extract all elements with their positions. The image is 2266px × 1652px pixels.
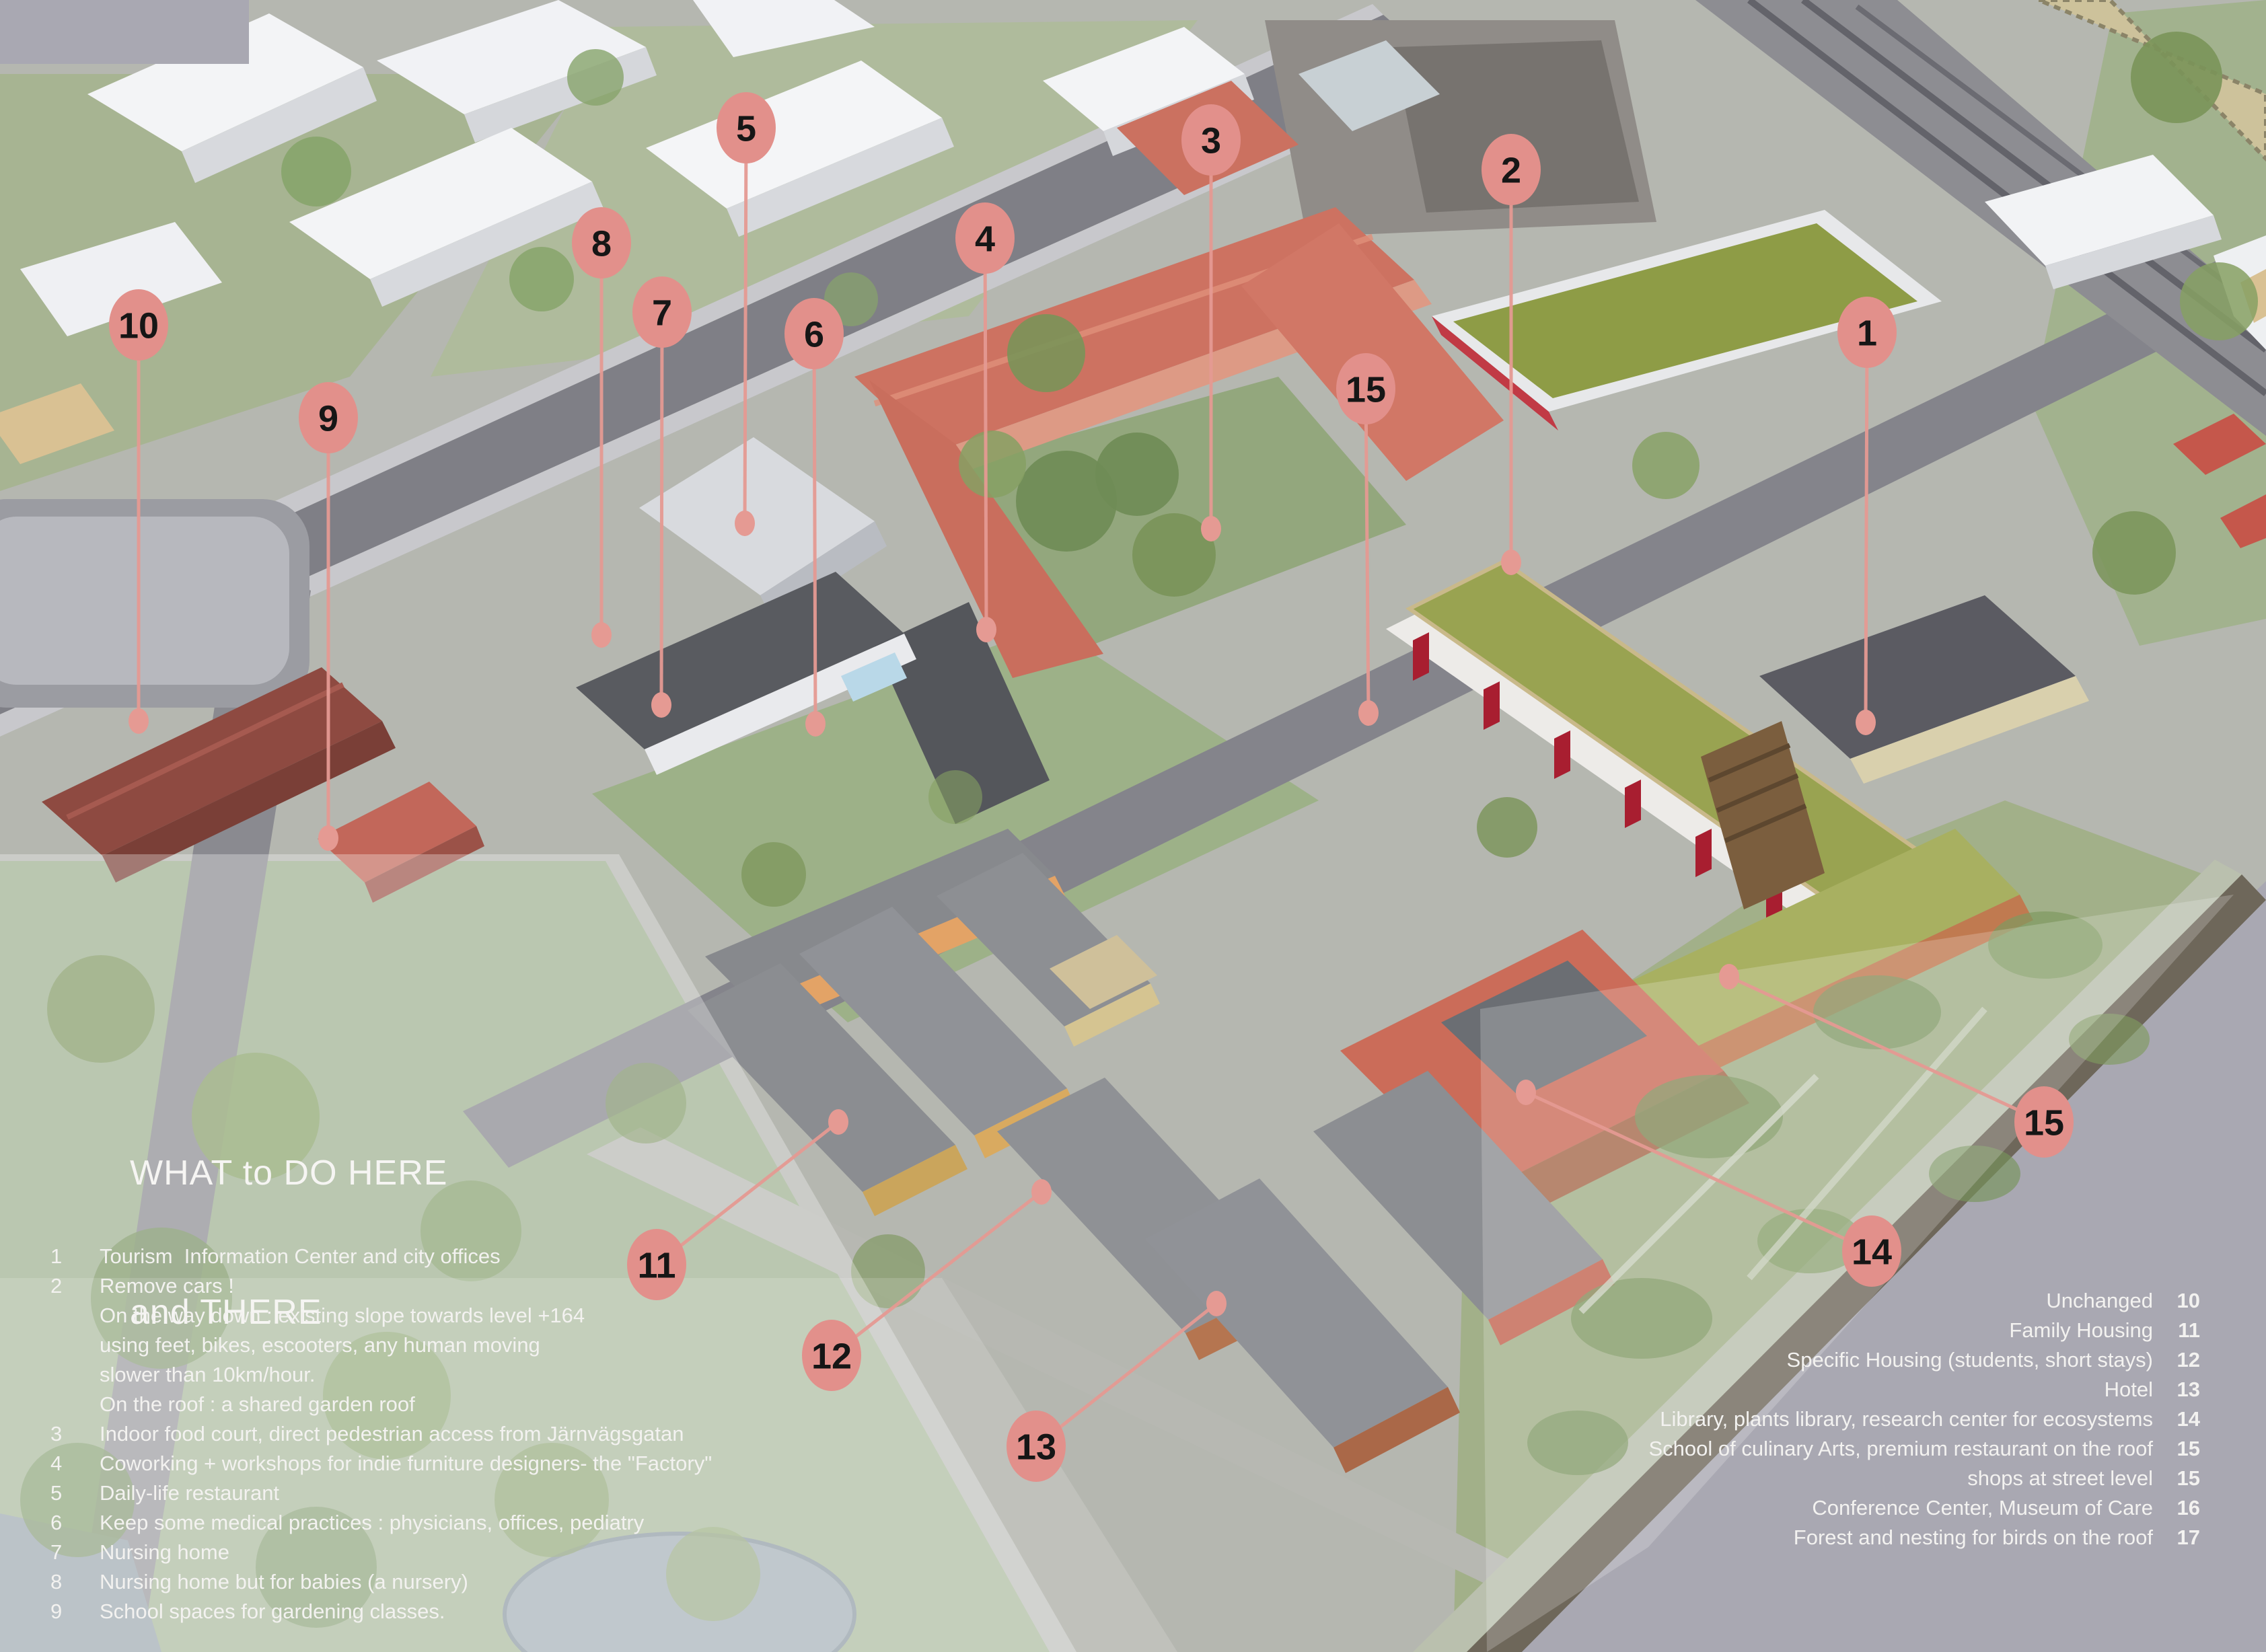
legend-right-row: Library, plants library, research center… — [1648, 1404, 2200, 1434]
legend-item-text: Forest and nesting for birds on the roof — [1794, 1523, 2153, 1552]
marker-number: 10 — [118, 305, 159, 346]
legend-item-number — [50, 1390, 100, 1419]
legend-item-text: Tourism Information Center and city offi… — [100, 1242, 501, 1271]
legend-item-number: 2 — [50, 1271, 100, 1301]
map-marker-15: 15 — [2014, 1086, 2074, 1158]
legend-left-row: 8Nursing home but for babies (a nursery) — [50, 1567, 712, 1597]
legend-item-number — [50, 1301, 100, 1330]
leader-line-14 — [1526, 1092, 1872, 1251]
leader-endpoint-dot — [318, 825, 338, 851]
legend-right-list: Unchanged10Family Housing11Specific Hous… — [1648, 1286, 2200, 1552]
legend-item-number: 15 — [2153, 1464, 2200, 1493]
map-marker-10: 10 — [109, 289, 168, 361]
map-marker-14: 14 — [1842, 1215, 1901, 1287]
legend-item-text: Conference Center, Museum of Care — [1812, 1493, 2153, 1523]
legend-item-number: 16 — [2153, 1493, 2200, 1523]
legend-left-row: 4Coworking + workshops for indie furnitu… — [50, 1449, 712, 1478]
map-marker-2: 2 — [1482, 134, 1541, 205]
marker-number: 5 — [736, 108, 756, 149]
legend-item-text: Library, plants library, research center… — [1660, 1404, 2153, 1434]
legend-item-text: On the roof : a shared garden roof — [100, 1390, 415, 1419]
legend-item-number: 13 — [2153, 1375, 2200, 1404]
map-marker-12: 12 — [802, 1320, 861, 1391]
leader-line-12 — [832, 1192, 1041, 1355]
map-marker-8: 8 — [572, 207, 631, 278]
legend-left-row: 7Nursing home — [50, 1538, 712, 1567]
legend-item-text: Indoor food court, direct pedestrian acc… — [100, 1419, 684, 1449]
leader-line-4 — [985, 238, 986, 630]
legend-item-text: On the way down : existing slope towards… — [100, 1301, 585, 1330]
legend-left-row: On the way down : existing slope towards… — [50, 1301, 712, 1330]
marker-number: 12 — [811, 1336, 852, 1376]
marker-number: 9 — [318, 398, 338, 439]
legend-right-row: shops at street level15 — [1648, 1464, 2200, 1493]
map-marker-6: 6 — [784, 298, 844, 369]
marker-number: 13 — [1016, 1427, 1056, 1467]
legend-item-number — [50, 1360, 100, 1390]
leader-endpoint-dot — [591, 622, 612, 648]
marker-number: 14 — [1852, 1232, 1892, 1272]
map-marker-4: 4 — [955, 202, 1015, 274]
legend-item-number: 17 — [2153, 1523, 2200, 1552]
map-marker-3: 3 — [1181, 104, 1241, 176]
leader-line-1 — [1866, 332, 1867, 722]
leader-endpoint-dot — [1206, 1291, 1227, 1316]
leader-endpoint-dot — [1358, 700, 1379, 726]
legend-item-text: Unchanged — [2046, 1286, 2153, 1316]
leader-line-13 — [1036, 1304, 1216, 1446]
legend-item-number: 9 — [50, 1597, 100, 1626]
legend-item-number: 5 — [50, 1478, 100, 1508]
marker-number: 15 — [1346, 369, 1386, 410]
marker-number: 15 — [2024, 1102, 2064, 1143]
legend-left-row: 6Keep some medical practices : physician… — [50, 1508, 712, 1538]
leader-line-7 — [661, 312, 662, 705]
title-line-1: WHAT to DO HERE — [130, 1150, 447, 1197]
map-marker-7: 7 — [632, 276, 692, 348]
legend-item-number: 3 — [50, 1419, 100, 1449]
legend-left-row: using feet, bikes, escooters, any human … — [50, 1330, 712, 1360]
legend-item-number: 14 — [2153, 1404, 2200, 1434]
legend-item-number: 1 — [50, 1242, 100, 1271]
legend-item-number: 11 — [2153, 1316, 2200, 1345]
legend-item-text: Nursing home — [100, 1538, 229, 1567]
map-marker-1: 1 — [1837, 297, 1897, 368]
masterplan-slide: 10987564315211112131415 WHAT to DO HERE … — [0, 0, 2266, 1652]
legend-right-row: Forest and nesting for birds on the roof… — [1648, 1523, 2200, 1552]
map-marker-13: 13 — [1007, 1411, 1066, 1482]
leader-endpoint-dot — [805, 711, 826, 737]
legend-left-list: 1Tourism Information Center and city off… — [50, 1242, 712, 1626]
marker-number: 6 — [804, 314, 824, 354]
legend-right-row: Specific Housing (students, short stays)… — [1648, 1345, 2200, 1375]
legend-item-text: School of culinary Arts, premium restaur… — [1648, 1434, 2153, 1464]
legend-item-text: Coworking + workshops for indie furnitur… — [100, 1449, 712, 1478]
legend-left-row: 9School spaces for gardening classes. — [50, 1597, 712, 1626]
legend-item-number — [50, 1330, 100, 1360]
leader-endpoint-dot — [651, 692, 671, 718]
legend-item-number: 15 — [2153, 1434, 2200, 1464]
leader-line-5 — [745, 128, 746, 523]
marker-number: 2 — [1501, 150, 1521, 190]
leader-endpoint-dot — [1516, 1080, 1536, 1105]
legend-right-row: School of culinary Arts, premium restaur… — [1648, 1434, 2200, 1464]
leader-endpoint-dot — [976, 617, 996, 642]
legend-item-text: slower than 10km/hour. — [100, 1360, 316, 1390]
legend-item-number: 6 — [50, 1508, 100, 1538]
legend-right-row: Conference Center, Museum of Care16 — [1648, 1493, 2200, 1523]
legend-item-text: Family Housing — [2009, 1316, 2153, 1345]
leader-endpoint-dot — [1856, 710, 1876, 735]
map-marker-15: 15 — [1336, 353, 1395, 424]
legend-left-row: 5Daily-life restaurant — [50, 1478, 712, 1508]
legend-item-number: 8 — [50, 1567, 100, 1597]
legend-item-number: 7 — [50, 1538, 100, 1567]
legend-item-text: using feet, bikes, escooters, any human … — [100, 1330, 540, 1360]
marker-number: 7 — [652, 293, 672, 333]
legend-right-row: Unchanged10 — [1648, 1286, 2200, 1316]
legend-item-text: shops at street level — [1967, 1464, 2153, 1493]
leader-endpoint-dot — [828, 1109, 848, 1135]
marker-number: 8 — [591, 223, 612, 264]
legend-item-text: Hotel — [2105, 1375, 2153, 1404]
marker-number: 4 — [975, 219, 995, 259]
leader-endpoint-dot — [129, 708, 149, 734]
leader-line-6 — [814, 334, 815, 724]
leader-line-15 — [1729, 977, 2044, 1122]
legend-item-text: School spaces for gardening classes. — [100, 1597, 445, 1626]
map-marker-9: 9 — [299, 382, 358, 453]
map-marker-5: 5 — [717, 92, 776, 163]
leader-line-15 — [1366, 389, 1368, 713]
legend-left-row: 1Tourism Information Center and city off… — [50, 1242, 712, 1271]
legend-item-number: 10 — [2153, 1286, 2200, 1316]
legend-left-row: 3Indoor food court, direct pedestrian ac… — [50, 1419, 712, 1449]
legend-item-text: Keep some medical practices : physicians… — [100, 1508, 644, 1538]
legend-left-row: On the roof : a shared garden roof — [50, 1390, 712, 1419]
leader-endpoint-dot — [735, 511, 755, 536]
legend-left-row: 2Remove cars ! — [50, 1271, 712, 1301]
legend-right-row: Hotel13 — [1648, 1375, 2200, 1404]
leader-endpoint-dot — [1719, 964, 1739, 989]
legend-item-number: 4 — [50, 1449, 100, 1478]
marker-number: 3 — [1201, 120, 1221, 161]
legend-item-text: Remove cars ! — [100, 1271, 234, 1301]
legend-left-row: slower than 10km/hour. — [50, 1360, 712, 1390]
legend-item-text: Nursing home but for babies (a nursery) — [100, 1567, 468, 1597]
legend-item-number: 12 — [2153, 1345, 2200, 1375]
legend-item-text: Daily-life restaurant — [100, 1478, 279, 1508]
leader-endpoint-dot — [1201, 516, 1221, 541]
legend-item-text: Specific Housing (students, short stays) — [1787, 1345, 2153, 1375]
leader-endpoint-dot — [1501, 550, 1521, 575]
leader-endpoint-dot — [1031, 1179, 1052, 1205]
legend-right-row: Family Housing11 — [1648, 1316, 2200, 1345]
marker-number: 1 — [1857, 313, 1877, 353]
